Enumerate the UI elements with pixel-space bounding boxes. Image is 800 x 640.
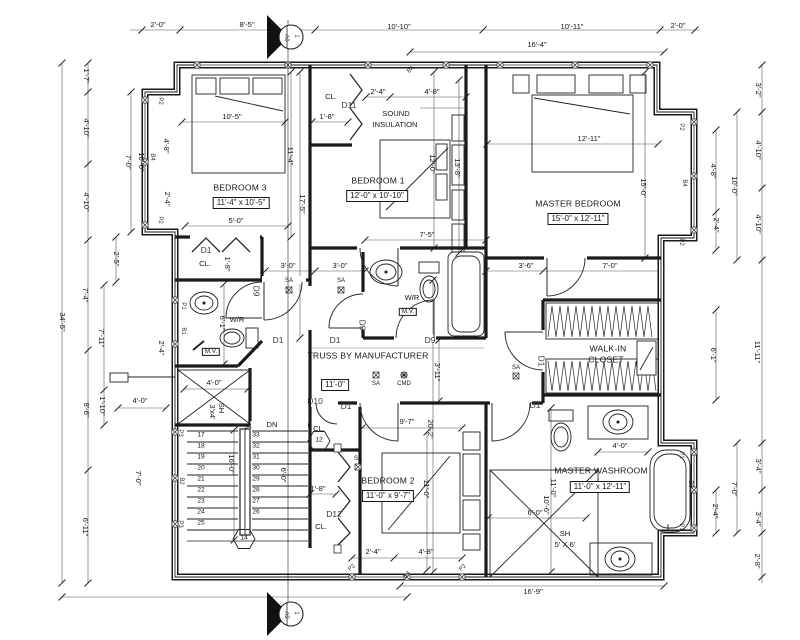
- annotation: 7'-11": [97, 329, 105, 348]
- annotation: 3'-0": [332, 262, 347, 270]
- room-label-bedroom-2: BEDROOM 2: [361, 477, 414, 486]
- annotation: 1'-8": [310, 485, 325, 493]
- annotation: 15'-0": [639, 178, 647, 197]
- annotation: 2'-0": [670, 22, 685, 30]
- window-tag: P2: [458, 563, 467, 572]
- annotation: 4'-8": [424, 88, 439, 96]
- annotation: 3'-2": [754, 82, 762, 97]
- annotation: 2'-4": [163, 191, 171, 206]
- stair-number: 21: [197, 477, 204, 484]
- window-tag: B3: [687, 480, 693, 487]
- annotation: 4'-10": [754, 214, 762, 233]
- smoke-alarm: SA: [372, 381, 380, 387]
- smoke-alarm: SA: [354, 456, 362, 462]
- window-tag: B2: [178, 477, 184, 484]
- annotation: SH: [217, 403, 225, 414]
- annotation: 6'-1": [218, 315, 226, 330]
- stair-number: 26: [252, 510, 259, 517]
- annotation: 10'-5": [222, 113, 241, 121]
- annotation: 2'-4": [711, 503, 719, 518]
- annotation: 4'-0": [132, 397, 147, 405]
- closet-label: CL.: [325, 93, 337, 101]
- hall-width-dim: 11'-0": [321, 379, 349, 391]
- room-label-bedroom-3: BEDROOM 3: [213, 184, 266, 193]
- room-label-walk-in-closet: WALK-IN: [590, 345, 627, 354]
- annotation: 16'-0": [227, 454, 235, 473]
- annotation: 2'-4": [365, 548, 380, 556]
- stair-number: 34: [244, 425, 251, 432]
- window-tag: P2: [347, 563, 356, 572]
- room-size-master-washroom: 11'-0" x 12'-11": [570, 481, 630, 493]
- annotation: 7'-5": [419, 231, 434, 239]
- carbon-monoxide-detector: CMD: [397, 381, 411, 387]
- door-tag: D1: [341, 402, 352, 411]
- annotation: 4'-0": [612, 442, 627, 450]
- window-tag: B1: [180, 327, 186, 334]
- annotation: 4'-0": [206, 379, 221, 387]
- window-tag: P1: [180, 302, 186, 309]
- annotation: 16'-9": [523, 588, 542, 596]
- annotation: 2'-8": [753, 553, 761, 568]
- window-tag: P2: [157, 216, 163, 223]
- annotation: 3'x4': [208, 404, 216, 419]
- stair-down-label: DN: [267, 421, 278, 429]
- smoke-alarm: SA: [285, 278, 293, 284]
- window-tag: B4: [402, 570, 411, 579]
- window-tag: P1: [678, 451, 684, 458]
- annotation: 10'-11": [560, 23, 583, 31]
- door-tag: D9: [358, 320, 367, 331]
- annotation: 4'-8": [709, 163, 717, 178]
- annotation: CLOSET: [588, 356, 624, 365]
- smoke-alarm: SA: [337, 278, 345, 284]
- room-size-master-bedroom: 15'-0" x 12'-11": [547, 213, 608, 225]
- annotation: 7'-0": [602, 262, 617, 270]
- annotation: 2'-0": [150, 21, 165, 29]
- smoke-alarm: SA: [512, 365, 520, 371]
- room-size-bedroom-3: 11'-4" x 10'-5": [213, 197, 270, 209]
- stair-number: 32: [252, 444, 259, 451]
- section-marker-number: 1: [293, 34, 299, 37]
- door-tag: D1: [201, 246, 212, 255]
- annotation-layer: BEDROOM 311'-4" x 10'-5"BEDROOM 112'-0" …: [0, 0, 800, 640]
- section-marker-sheet: A9: [283, 34, 289, 41]
- annotation: 11'-0": [549, 479, 557, 498]
- stair-number: 19: [197, 455, 204, 462]
- door-tag: D1: [537, 356, 546, 367]
- annotation: 3'-0": [280, 262, 295, 270]
- annotation: 34'-5": [58, 312, 66, 331]
- annotation: 11'-4": [286, 147, 294, 166]
- section-marker-number: 1: [293, 611, 299, 614]
- annotation: 4'-10": [82, 192, 90, 211]
- mech-vent-label: M.V.: [202, 348, 220, 356]
- annotation: 3'-4": [754, 458, 762, 473]
- annotation: 20'-2": [426, 419, 434, 438]
- window-tag: P3: [177, 429, 183, 436]
- window-tag: P2: [678, 238, 684, 245]
- annotation: 6'-1": [709, 347, 717, 362]
- annotation: INSULATION: [372, 121, 417, 129]
- annotation: 11'-11": [753, 341, 761, 363]
- annotation: 10'-0": [730, 176, 738, 195]
- tag-hexagon-14: 14: [240, 536, 247, 543]
- annotation: 4'-8": [162, 138, 170, 153]
- door-tag: D1: [330, 336, 341, 345]
- stair-number: 24: [197, 510, 204, 517]
- annotation: 1'-10": [98, 396, 106, 415]
- annotation: 10'-6": [542, 495, 550, 514]
- closet-label: CL.: [313, 425, 325, 433]
- stair-number: 29: [252, 477, 259, 484]
- stair-number: 31: [252, 455, 259, 462]
- annotation: 4'-8": [418, 548, 433, 556]
- stair-number: 33: [252, 433, 259, 440]
- door-tag: D9: [425, 336, 436, 345]
- annotation: 10'-10": [387, 23, 411, 31]
- stair-number: 23: [197, 499, 204, 506]
- annotation: 12'-11": [577, 135, 600, 143]
- window-tag: B4: [406, 65, 415, 74]
- stair-number: 27: [252, 499, 259, 506]
- annotation: 4'-10": [82, 118, 90, 137]
- window-tag: P2: [157, 97, 163, 104]
- annotation: 1'-8": [223, 256, 231, 271]
- annotation: 3'-11": [433, 363, 441, 382]
- room-label-bedroom-1: BEDROOM 1: [351, 177, 404, 186]
- room-size-bedroom-1: 12'-0" x 10'-10": [346, 190, 408, 202]
- closet-label: CL.: [199, 260, 211, 268]
- door-tag: D9: [252, 286, 261, 297]
- annotation: 1'-8": [319, 113, 334, 121]
- section-marker-sheet: A9: [283, 611, 289, 618]
- annotation: 8'-6": [82, 402, 90, 417]
- door-tag: D1: [530, 401, 541, 410]
- tag-hexagon-12: 12: [315, 438, 322, 445]
- window-tag: B4: [149, 153, 155, 160]
- stair-number: 17: [197, 433, 204, 440]
- annotation: 5' X 6': [555, 541, 576, 549]
- mech-vent-label: M.V.: [399, 308, 417, 316]
- annotation: 2'-4": [712, 217, 720, 232]
- annotation: 7'-0": [730, 481, 738, 496]
- washroom-label: W/R: [230, 316, 245, 324]
- annotation: 5'-0": [228, 217, 243, 225]
- door-tag: D1: [273, 336, 284, 345]
- floor-plan-canvas: BEDROOM 311'-4" x 10'-5"BEDROOM 112'-0" …: [0, 0, 800, 640]
- note-sound-insulation: SOUND: [382, 110, 409, 118]
- annotation: 1'-7": [82, 68, 90, 83]
- window-tag: P2: [678, 123, 684, 130]
- stair-number: 18: [197, 444, 204, 451]
- room-label-master-bedroom: MASTER BEDROOM: [535, 200, 620, 209]
- annotation: 17'-5": [298, 194, 306, 213]
- annotation: 6'-11": [81, 518, 89, 537]
- room-size-bedroom-2: 11'-0" x 9'-7": [362, 490, 414, 502]
- annotation: 7'-0": [124, 154, 132, 169]
- stair-number: 25: [197, 521, 204, 528]
- annotation: 3'-6": [518, 262, 533, 270]
- door-tag: D12: [326, 510, 342, 519]
- annotation: 6'-0": [527, 509, 542, 517]
- annotation: 2'-5": [112, 251, 120, 266]
- washroom-label: W/R: [405, 294, 420, 302]
- annotation: 6'-0": [279, 467, 287, 482]
- closet-label: CL.: [315, 523, 327, 531]
- annotation: 8'-5": [239, 21, 254, 29]
- annotation: 13'-8": [453, 158, 461, 177]
- annotation: 7'-0": [134, 470, 142, 485]
- door-tag: D10: [307, 397, 323, 406]
- stair-number: 22: [197, 488, 204, 495]
- stair-number: 28: [252, 488, 259, 495]
- stair-number: 20: [197, 466, 204, 473]
- annotation: 12'-0": [428, 154, 436, 173]
- annotation: 4'-10": [754, 140, 762, 159]
- annotation: 11'-0": [422, 480, 430, 499]
- room-label-master-washroom: MASTER WASHROOM: [554, 467, 647, 476]
- window-tag: B4: [681, 179, 687, 186]
- note-truss: TRUSS BY MANUFACTURER: [307, 352, 428, 361]
- window-tag: P1: [678, 523, 684, 530]
- annotation: 3'-4": [754, 511, 762, 526]
- annotation: 16'-4": [527, 41, 546, 49]
- annotation: 7'-4": [81, 287, 89, 302]
- annotation: 2'-4": [370, 88, 385, 96]
- window-tag: P3: [177, 520, 183, 527]
- shower-label-master: SH: [560, 530, 571, 538]
- stair-number: 30: [252, 466, 259, 473]
- annotation: 9'-7": [399, 418, 414, 426]
- annotation: 2'-4": [157, 340, 165, 355]
- annotation: 10'-0": [137, 152, 145, 171]
- door-tag: D11: [342, 101, 357, 110]
